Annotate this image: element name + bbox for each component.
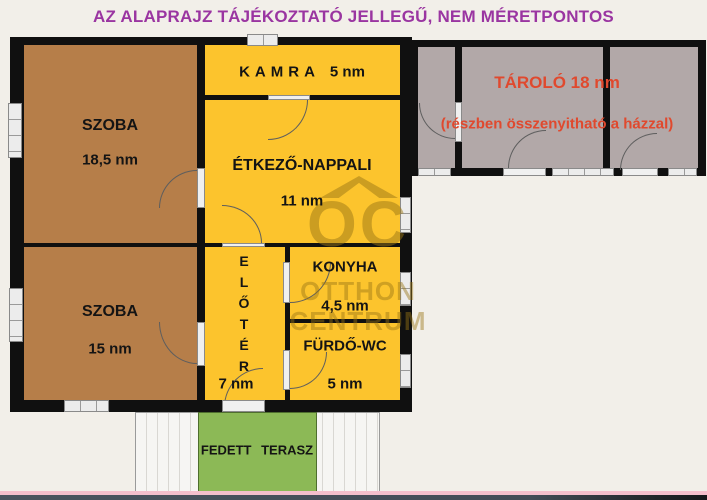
window-icon <box>400 197 411 233</box>
label-tarolo-name: TÁROLÓ 18 nm <box>494 73 620 93</box>
label-tarolo-note: (részben összenyitható a házzal) <box>441 116 674 133</box>
eloter-letter: L <box>240 275 249 289</box>
door-leaf <box>268 95 310 100</box>
label-konyha-name: KONYHA <box>312 259 377 276</box>
label-etkezo-area: 11 nm <box>281 193 324 210</box>
window-icon <box>418 168 451 176</box>
door-leaf <box>197 168 205 208</box>
window-icon <box>247 34 278 46</box>
window-icon <box>668 168 697 176</box>
label-konyha-area: 4,5 nm <box>321 298 369 315</box>
eloter-letter: Ő <box>239 296 250 310</box>
window-icon <box>64 400 109 412</box>
eloter-letter: T <box>240 317 249 331</box>
window-icon <box>8 103 22 158</box>
label-kamra: KAMRA 5 nm <box>239 64 365 81</box>
footer-slate-strip <box>0 495 707 500</box>
window-icon <box>400 272 411 306</box>
page-title: AZ ALAPRAJZ TÁJÉKOZTATÓ JELLEGŰ, NEM MÉR… <box>0 7 707 27</box>
label-kamra-area: 5 nm <box>330 64 365 81</box>
door-leaf <box>222 243 265 247</box>
door-leaf <box>222 400 265 412</box>
door-leaf <box>622 168 658 176</box>
room-szoba-top <box>24 45 197 243</box>
label-eloter-area: 7 nm <box>218 376 253 393</box>
label-etkezo-name: ÉTKEZŐ-NAPPALI <box>232 157 371 175</box>
door-leaf <box>197 322 205 366</box>
eloter-letter: R <box>239 359 249 373</box>
window-icon <box>552 168 614 176</box>
label-furdo-area: 5 nm <box>327 376 362 393</box>
label-eloter-name: E L Ő T É R <box>239 254 250 373</box>
label-szoba-bottom-name: SZOBA <box>82 303 138 321</box>
label-szoba-top-area: 18,5 nm <box>82 152 138 169</box>
window-icon <box>9 288 23 342</box>
label-kamra-name: KAMRA <box>239 64 320 81</box>
label-furdo-name: FÜRDŐ-WC <box>303 338 386 355</box>
label-terasz: FEDETT TERASZ <box>201 443 313 458</box>
eloter-letter: É <box>239 338 248 352</box>
door-leaf <box>503 168 546 176</box>
window-icon <box>400 354 411 388</box>
eloter-letter: E <box>239 254 248 268</box>
label-szoba-bottom-area: 15 nm <box>88 341 131 358</box>
label-szoba-top-name: SZOBA <box>82 117 138 135</box>
floorplan-canvas: AZ ALAPRAJZ TÁJÉKOZTATÓ JELLEGŰ, NEM MÉR… <box>0 0 707 500</box>
door-leaf <box>283 262 290 303</box>
door-leaf <box>283 350 290 390</box>
